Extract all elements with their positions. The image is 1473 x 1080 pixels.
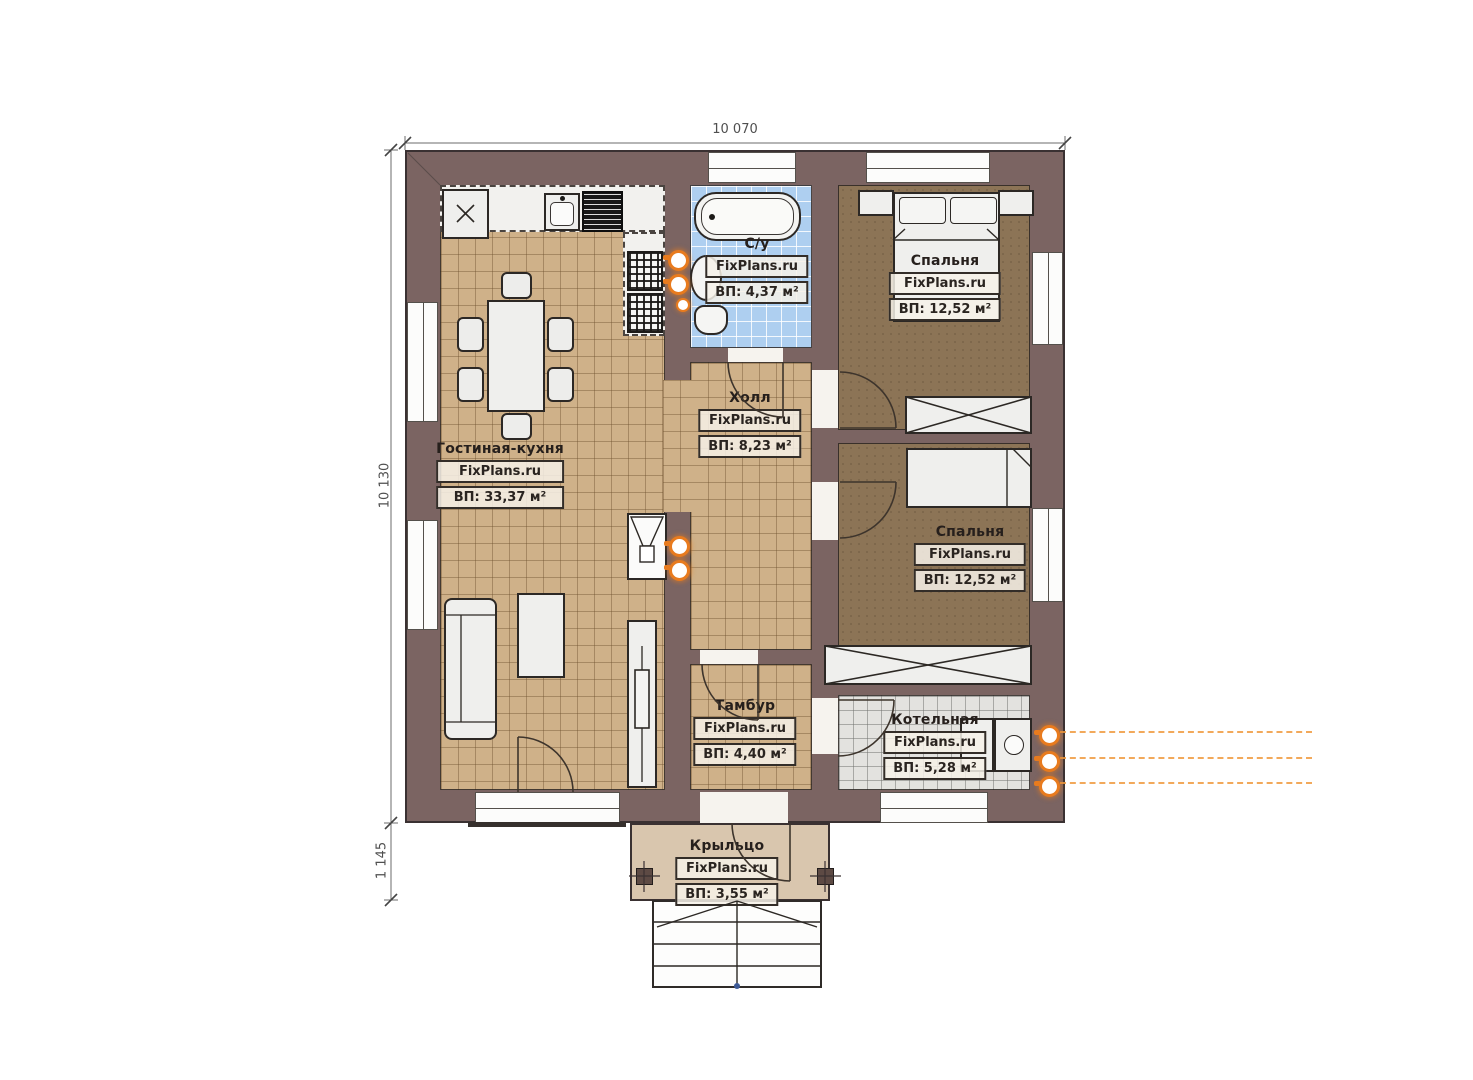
room-name: Спальня xyxy=(914,524,1026,540)
area-box: ВП: 5,28 м² xyxy=(883,757,986,780)
area-box: ВП: 33,37 м² xyxy=(436,486,564,509)
toilet xyxy=(694,305,728,335)
nightstand-left xyxy=(858,190,894,216)
door-opening-bathroom xyxy=(728,348,783,362)
room-label-living-kitchen: Гостиная-кухня FixPlans.ru ВП: 33,37 м² xyxy=(436,441,564,509)
wardrobe-bedroom-1 xyxy=(905,396,1032,434)
dimension-height-label: 10 130 xyxy=(378,456,393,516)
chair xyxy=(457,317,484,352)
wardrobe-bedroom-2 xyxy=(824,645,1032,685)
room-name: Котельная xyxy=(883,712,986,728)
window-bathroom-top xyxy=(708,152,796,183)
chair xyxy=(501,272,532,299)
utility-dash-line xyxy=(1060,731,1312,733)
brand-box: FixPlans.ru xyxy=(883,731,986,754)
chair xyxy=(457,367,484,402)
water-heater-ring xyxy=(1004,735,1024,755)
porch-post-right xyxy=(817,868,834,885)
entrance-door-opening xyxy=(700,792,788,823)
window-living-left-2 xyxy=(407,520,438,630)
window-bedroom1-top xyxy=(866,152,990,183)
room-name: Тамбур xyxy=(693,698,796,714)
sofa xyxy=(444,598,497,740)
door-opening-bedroom-2 xyxy=(812,482,838,540)
utility-dash-line xyxy=(1060,757,1312,759)
chair xyxy=(547,317,574,352)
utility-connection-icon xyxy=(668,250,689,271)
fridge xyxy=(442,189,489,239)
dimension-porch-label: 1 145 xyxy=(375,831,390,891)
area-box: ВП: 4,40 м² xyxy=(693,743,796,766)
kitchen-sink xyxy=(544,193,580,231)
floor-plan-canvas: Гостиная-кухня FixPlans.ru ВП: 33,37 м² … xyxy=(0,0,1473,1080)
utility-connection-icon xyxy=(668,274,689,295)
brand-box: FixPlans.ru xyxy=(436,460,564,483)
coffee-table xyxy=(517,593,565,678)
utility-dash-line xyxy=(1060,782,1312,784)
area-box: ВП: 3,55 м² xyxy=(675,883,778,906)
window-bedroom2-right xyxy=(1032,508,1063,602)
room-label-boiler: Котельная FixPlans.ru ВП: 5,28 м² xyxy=(883,712,986,780)
utility-connection-icon xyxy=(676,298,690,312)
dimension-width-label: 10 070 xyxy=(712,122,758,137)
door-opening-bedroom-1 xyxy=(812,370,838,428)
brand-box: FixPlans.ru xyxy=(698,409,801,432)
single-bed xyxy=(906,448,1032,508)
window-living-left-1 xyxy=(407,302,438,422)
chair xyxy=(501,413,532,440)
room-label-porch: Крыльцо FixPlans.ru ВП: 3,55 м² xyxy=(675,838,778,906)
porch-steps xyxy=(652,900,822,988)
passage-living-hall xyxy=(663,380,692,512)
dining-table xyxy=(487,300,545,412)
utility-connection-icon xyxy=(669,560,690,581)
window-bedroom1-right xyxy=(1032,252,1063,345)
bathtub xyxy=(694,192,801,241)
kitchen-sink-basin xyxy=(550,202,574,226)
room-name: Гостиная-кухня xyxy=(436,441,564,457)
bathtub-drain xyxy=(709,214,715,220)
nightstand-right xyxy=(998,190,1034,216)
room-name: Спальня xyxy=(889,253,1001,269)
pillow-left xyxy=(899,197,946,224)
area-box: ВП: 8,23 м² xyxy=(698,435,801,458)
pillow-right xyxy=(950,197,997,224)
window-sill xyxy=(468,822,626,827)
utility-connection-icon xyxy=(669,536,690,557)
kitchen-faucet xyxy=(560,196,565,201)
chimney-flue xyxy=(627,513,667,580)
area-box: ВП: 12,52 м² xyxy=(914,569,1026,592)
brand-box: FixPlans.ru xyxy=(889,272,1001,295)
brand-box: FixPlans.ru xyxy=(705,255,808,278)
area-box: ВП: 12,52 м² xyxy=(889,298,1001,321)
area-box: ВП: 4,37 м² xyxy=(705,281,808,304)
utility-connection-icon xyxy=(1039,776,1060,797)
utility-connection-icon xyxy=(1039,725,1060,746)
window-living-bottom xyxy=(475,792,620,823)
window-boiler-bottom xyxy=(880,792,988,823)
room-label-hall: Холл FixPlans.ru ВП: 8,23 м² xyxy=(698,390,801,458)
brand-box: FixPlans.ru xyxy=(675,857,778,880)
room-label-bathroom: С/у FixPlans.ru ВП: 4,37 м² xyxy=(705,236,808,304)
room-label-tambour: Тамбур FixPlans.ru ВП: 4,40 м² xyxy=(693,698,796,766)
utility-connection-icon xyxy=(1039,751,1060,772)
door-opening-boiler xyxy=(812,698,838,754)
dish-rack xyxy=(582,191,623,232)
room-label-bedroom-1: Спальня FixPlans.ru ВП: 12,52 м² xyxy=(889,253,1001,321)
chair xyxy=(547,367,574,402)
brand-box: FixPlans.ru xyxy=(693,717,796,740)
water-heater xyxy=(994,718,1032,772)
brand-box: FixPlans.ru xyxy=(914,543,1026,566)
stove-burners-top xyxy=(627,251,663,291)
door-opening-tambour-hall xyxy=(700,650,758,664)
porch-post-left xyxy=(636,868,653,885)
tv-stand xyxy=(627,620,657,788)
room-label-bedroom-2: Спальня FixPlans.ru ВП: 12,52 м² xyxy=(914,524,1026,592)
stove-burners-bottom xyxy=(627,293,663,333)
room-name: Крыльцо xyxy=(675,838,778,854)
room-name: Холл xyxy=(698,390,801,406)
room-name: С/у xyxy=(705,236,808,252)
